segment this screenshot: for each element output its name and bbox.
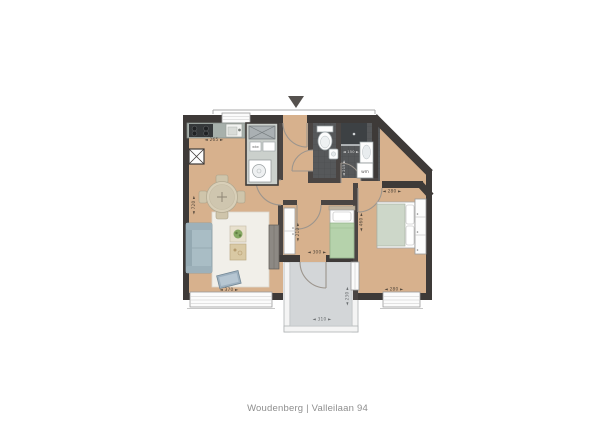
dimension-label-kitchen-width: ◄ 265 ► <box>205 137 224 143</box>
wall-bathroom-south-a <box>308 178 341 183</box>
wall-bedroom2-north-b <box>321 200 353 205</box>
sofa <box>186 223 212 273</box>
washing-machine: wm <box>357 163 373 178</box>
wall-top <box>183 115 377 123</box>
entrance-opening <box>283 115 307 123</box>
dimension-label-living-height: ◄ 720 ► <box>191 195 197 214</box>
balcony-railing-bottom <box>284 326 358 332</box>
technical-closet: wtw <box>246 123 278 185</box>
hand-basin <box>329 149 338 159</box>
duct-shaft <box>189 149 204 164</box>
toilet <box>317 126 333 150</box>
side-table-plant <box>230 226 246 242</box>
shaft-box <box>263 142 275 151</box>
living-window <box>187 292 275 309</box>
dimension-label-bedroom1-width-top: ◄ 280 ► <box>383 189 402 195</box>
meter-cupboard <box>249 126 275 139</box>
ventilation-label: wtw <box>252 145 259 149</box>
wc-opening <box>308 150 313 171</box>
kitchen-sink <box>226 124 242 137</box>
chair <box>237 191 245 203</box>
bedroom1-balcony-window <box>351 262 359 290</box>
dimension-label-balcony-height: ◄ 230 ► <box>345 286 351 305</box>
bedroom1-window <box>380 292 423 309</box>
balcony-railing-left <box>284 262 290 332</box>
chair <box>199 191 207 203</box>
dimension-label-bathroom-height: ◄ 215 ► <box>342 160 346 176</box>
side-table <box>230 244 246 260</box>
wall-wc-west-a <box>308 123 313 150</box>
bedroom1-opening <box>358 181 382 188</box>
caption: Woudenberg | Valleilaan 94 <box>0 403 615 414</box>
duvet <box>377 204 405 246</box>
pillow <box>406 205 414 224</box>
dimension-label-balcony-width: ◄ 310 ► <box>313 317 332 323</box>
kitchen <box>187 123 245 138</box>
balcony-floor <box>290 262 352 326</box>
dimension-label-bathroom-width: ◄ 150 ► <box>343 150 359 154</box>
single-bed <box>329 206 355 258</box>
dimension-label-bedroom2-height: ◄ 210 ► <box>295 222 301 241</box>
dimension-label-bedroom1-width-bottom: ◄ 280 ► <box>385 287 404 293</box>
pillow <box>406 226 414 245</box>
floor-plan-page: wtw <box>0 0 615 436</box>
pillow <box>333 212 351 221</box>
wardrobe-bedroom-1 <box>415 199 426 254</box>
plant-icon <box>234 230 243 239</box>
floor-plan: wtw <box>0 0 615 436</box>
balcony-opening <box>300 255 326 262</box>
wall-wc-west-b <box>308 171 313 178</box>
washing-machine-label: wm <box>361 170 369 175</box>
dimension-label-bedroom1-height: ◄ 460 ► <box>359 212 365 231</box>
washbasin <box>360 142 373 163</box>
entrance-arrow-icon <box>288 96 304 108</box>
double-bed <box>377 202 415 248</box>
headboard <box>329 206 355 210</box>
dimension-label-living-width: ◄ 370 ► <box>220 287 239 293</box>
cooktop <box>189 124 213 137</box>
bedroom-1 <box>377 199 426 254</box>
dimension-label-bedroom2-width: ◄ 300 ► <box>308 250 327 256</box>
kitchen-window <box>222 113 250 123</box>
wardrobe-bedroom-2 <box>284 208 295 254</box>
bedroom2-opening <box>297 200 321 205</box>
boiler-unit <box>249 160 271 182</box>
wall-bedroom2-north-a <box>283 200 297 205</box>
